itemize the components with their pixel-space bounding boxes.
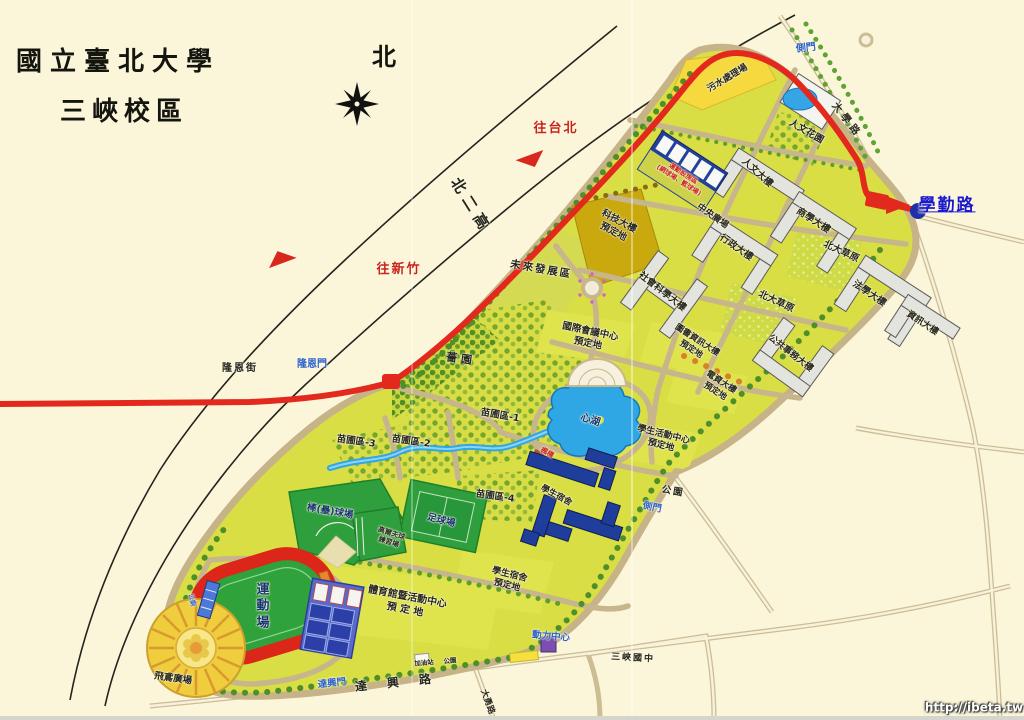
campus-map-canvas — [0, 0, 1024, 720]
feiyuan-plaza-circle — [147, 599, 245, 697]
daxue-road-roundabout — [860, 34, 872, 46]
bottom-edge-bar — [0, 716, 1024, 720]
gas-station-building — [415, 653, 430, 663]
longen-gate-marker — [382, 374, 400, 389]
golf-practice-range — [352, 507, 406, 561]
lake-island — [596, 416, 604, 424]
xueqin-road-dot — [910, 203, 926, 219]
power-center-building — [541, 637, 556, 652]
campus-map-screenshot: 國立臺北大學三峽校區北北二高往台北往新竹污水處理場側門大學路學勤路運動設施區 (… — [0, 0, 1024, 720]
